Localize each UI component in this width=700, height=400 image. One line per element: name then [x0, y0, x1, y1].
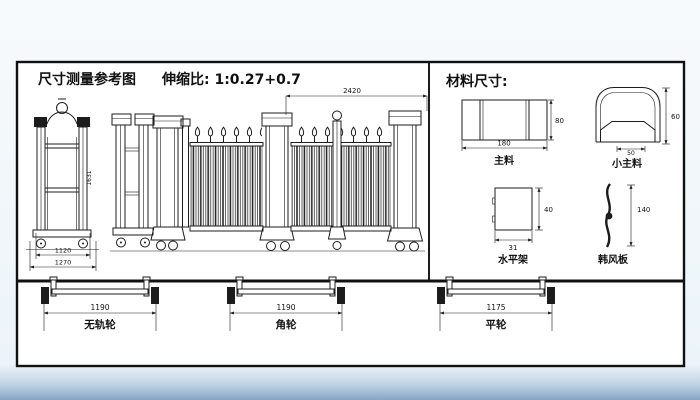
dim-small-main-width: 50 — [627, 150, 635, 157]
dim-unit-inner-width: 1120 — [55, 247, 72, 255]
measure-title: 尺寸测量参考图 — [38, 71, 136, 88]
label-wheel-1: 无轨轮 — [83, 318, 116, 331]
accordion-section-1 — [190, 126, 263, 231]
label-main-profile: 主料 — [494, 154, 514, 167]
dim-unit-outer-width: 1270 — [55, 259, 72, 267]
dim-horizontal-height: 40 — [544, 206, 553, 214]
dim-top-width: 2420 — [343, 87, 361, 95]
dim-horizontal-width: 31 — [509, 244, 518, 252]
dim-unit-height: 1631 — [86, 170, 93, 185]
dim-wheel-1: 1190 — [90, 303, 109, 312]
material-title: 材料尺寸: — [446, 73, 508, 90]
dim-curved-height: 140 — [637, 206, 650, 214]
label-horizontal-frame: 水平架 — [497, 253, 528, 266]
ratio-label: 伸缩比: 1:0.27+0.7 — [161, 71, 301, 88]
dim-small-main-height: 60 — [671, 113, 680, 121]
label-curved-panel: 韩风板 — [598, 253, 629, 266]
technical-drawing: 尺寸测量参考图 伸缩比: 1:0.27+0.7 材料尺寸: 1120 1270 … — [0, 0, 700, 400]
dim-main-width: 180 — [497, 140, 510, 148]
dim-main-height: 80 — [555, 117, 564, 125]
label-wheel-2: 角轮 — [276, 318, 297, 331]
dim-wheel-2: 1190 — [276, 303, 295, 312]
label-wheel-3: 平轮 — [486, 318, 507, 331]
dim-wheel-3: 1175 — [486, 303, 505, 312]
label-small-main-profile: 小主料 — [611, 157, 642, 170]
